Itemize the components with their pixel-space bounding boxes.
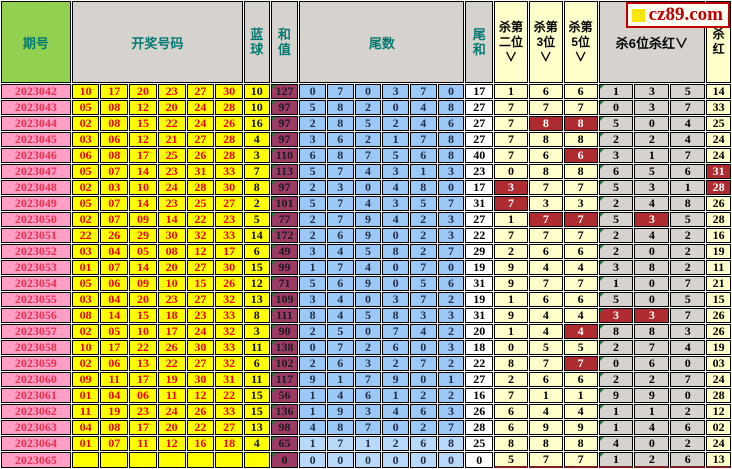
tail-sum-cell: 18	[465, 340, 493, 355]
kill-pos5-cell: 7	[564, 100, 598, 115]
blue-ball-cell: 11	[244, 340, 270, 355]
tail-cell: 5	[355, 244, 382, 259]
tail-sum-cell: 25	[465, 436, 493, 451]
red-ball-cell: 07	[100, 196, 128, 211]
period-cell: 2023055	[1, 292, 71, 307]
tail-cell: 8	[438, 132, 465, 147]
tail-sum-cell: 17	[465, 84, 493, 99]
red-ball-cell: 21	[158, 132, 186, 147]
kill-pos2-cell: 0	[494, 340, 528, 355]
red-ball-cell: 18	[158, 308, 186, 323]
sum-cell: 97	[271, 116, 299, 131]
period-cell: 2023060	[1, 372, 71, 387]
kill-pos3-cell: 8	[529, 132, 563, 147]
red-ball-cell: 06	[129, 388, 157, 403]
kill-pos5-cell: 7	[564, 180, 598, 195]
col-header-kill-pos2[interactable]: 杀第二位∨	[494, 1, 528, 83]
tail-cell: 0	[382, 260, 409, 275]
red-ball-cell: 09	[129, 276, 157, 291]
red-ball-cell: 03	[72, 244, 100, 259]
kill6-red-cell: 8	[670, 196, 705, 211]
kill-pos5-cell: 8	[564, 132, 598, 147]
tail-cell: 4	[382, 404, 409, 419]
red-ball-cell: 25	[187, 196, 215, 211]
red-ball-cell	[129, 452, 157, 468]
tail-cell: 3	[438, 228, 465, 243]
tail-cell: 8	[438, 100, 465, 115]
kill-pos3-cell: 6	[529, 84, 563, 99]
kill-pos5-cell: 7	[564, 356, 598, 371]
kill-pos3-cell: 6	[529, 372, 563, 387]
red-ball-cell: 23	[158, 196, 186, 211]
kill-pos3-cell: 7	[529, 100, 563, 115]
red-ball-cell: 22	[215, 388, 243, 403]
tail-cell: 7	[327, 84, 354, 99]
red-ball-cell: 07	[100, 212, 128, 227]
tail-cell: 7	[327, 260, 354, 275]
red-ball-cell: 10	[129, 324, 157, 339]
red-ball-cell	[215, 452, 243, 468]
tail-cell: 6	[382, 340, 409, 355]
red-ball-cell: 29	[129, 228, 157, 243]
period-cell: 2023061	[1, 388, 71, 403]
red-ball-cell: 02	[72, 212, 100, 227]
red-ball-cell: 24	[187, 100, 215, 115]
kill6-red-cell: 9	[634, 388, 669, 403]
kill6-red-cell: 6	[599, 164, 634, 179]
red-ball-cell: 33	[215, 340, 243, 355]
tail-cell: 0	[299, 340, 326, 355]
red-ball-cell: 26	[187, 404, 215, 419]
red-ball-cell: 10	[129, 180, 157, 195]
kill6-red-cell: 0	[634, 276, 669, 291]
tail-cell: 0	[382, 420, 409, 435]
tail-cell: 3	[299, 292, 326, 307]
tail-cell: 3	[382, 84, 409, 99]
red-ball-cell: 01	[72, 260, 100, 275]
red-ball-cell: 33	[215, 404, 243, 419]
tail-cell: 5	[299, 164, 326, 179]
tail-cell: 0	[355, 324, 382, 339]
tail-cell: 8	[382, 244, 409, 259]
tail-cell: 2	[410, 420, 437, 435]
tail-cell: 0	[438, 84, 465, 99]
red-ball-cell: 27	[187, 84, 215, 99]
red-ball-cell: 22	[187, 212, 215, 227]
kill6-red-cell: 0	[634, 116, 669, 131]
table-body: 2023042101720232730101270703701716613514…	[1, 84, 731, 468]
sum-cell: 109	[271, 292, 299, 307]
tail-sum-cell: 29	[465, 244, 493, 259]
kill-pos3-cell: 7	[529, 228, 563, 243]
sum-cell: 49	[271, 244, 299, 259]
period-cell: 2023063	[1, 420, 71, 435]
tail-cell: 1	[299, 436, 326, 451]
red-ball-cell: 14	[129, 260, 157, 275]
kill6-red-cell: 0	[634, 292, 669, 307]
tail-cell: 6	[327, 228, 354, 243]
tail-cell: 2	[438, 324, 465, 339]
tail-cell: 6	[327, 132, 354, 147]
table-row: 202304305081220242810975820482777703733	[1, 100, 731, 115]
red-ball-cell: 02	[72, 180, 100, 195]
tail-sum-cell: 40	[465, 148, 493, 163]
kill6-red-cell: 5	[599, 180, 634, 195]
tail-cell: 3	[438, 308, 465, 323]
tail-sum-cell: 27	[465, 100, 493, 115]
sum-cell: 71	[271, 276, 299, 291]
red-ball-cell: 27	[215, 196, 243, 211]
red-ball-cell	[100, 452, 128, 468]
kill6-red-cell: 2	[599, 132, 634, 147]
red-ball-cell: 15	[187, 276, 215, 291]
blue-ball-cell: 10	[244, 100, 270, 115]
sum-cell: 101	[271, 196, 299, 211]
tail-cell: 0	[438, 260, 465, 275]
kill-pos5-cell: 7	[564, 452, 598, 468]
kill-pos5-cell: 4	[564, 260, 598, 275]
kill6-red-cell: 4	[599, 436, 634, 451]
kill-pos3-cell: 6	[529, 148, 563, 163]
tail-cell: 7	[410, 356, 437, 371]
tail-cell: 2	[410, 212, 437, 227]
red-ball-cell: 30	[215, 260, 243, 275]
kill-pos2-cell: 7	[494, 100, 528, 115]
red-ball-cell: 26	[215, 276, 243, 291]
tail-cell: 7	[327, 340, 354, 355]
red-ball-cell: 33	[215, 308, 243, 323]
tail-cell: 2	[355, 100, 382, 115]
tail-cell: 7	[410, 132, 437, 147]
tail-cell: 6	[299, 148, 326, 163]
tail-cell: 7	[410, 84, 437, 99]
sum-cell: 172	[271, 228, 299, 243]
red-ball-cell: 12	[129, 100, 157, 115]
red-ball-cell: 26	[187, 148, 215, 163]
kill6-red-cell: 3	[634, 180, 669, 195]
kill-pos5-cell: 6	[564, 148, 598, 163]
red-ball-cell: 08	[72, 308, 100, 323]
tail-cell: 2	[438, 388, 465, 403]
red-ball-cell: 18	[215, 436, 243, 451]
table-row: 20230640107111216184651712682588840224	[1, 436, 731, 451]
red-ball-cell: 31	[215, 372, 243, 387]
red-ball-cell: 32	[215, 324, 243, 339]
tail-cell: 8	[327, 116, 354, 131]
kill-pos5-cell: 6	[564, 244, 598, 259]
kill-pos2-cell: 7	[494, 148, 528, 163]
tail-sum-cell: 20	[465, 324, 493, 339]
kill-pos2-cell: 3	[494, 180, 528, 195]
tail-cell: 3	[299, 244, 326, 259]
kill6-red-cell: 7	[670, 100, 705, 115]
red-ball-cell: 27	[187, 292, 215, 307]
red-ball-cell: 01	[72, 436, 100, 451]
table-row: 2023058101722263033111380726031805527419	[1, 340, 731, 355]
tail-cell: 5	[355, 308, 382, 323]
kill6-red-cell: 2	[634, 132, 669, 147]
col-header-tail-sum: 尾和	[465, 1, 493, 83]
table-row: 2023060091117193031111179179012726622724	[1, 372, 731, 387]
tail-cell: 3	[438, 340, 465, 355]
tail-cell: 0	[355, 452, 382, 468]
kill-pos2-cell: 6	[494, 420, 528, 435]
tail-cell: 8	[327, 100, 354, 115]
kill6-red-cell: 7	[670, 148, 705, 163]
kill-red-cell: 19	[706, 340, 731, 355]
tail-sum-cell: 26	[465, 404, 493, 419]
tail-cell: 2	[382, 436, 409, 451]
table-row: 202305902061322273261022632722287706003	[1, 356, 731, 371]
col-header-draw-numbers: 开奖号码	[72, 1, 243, 83]
kill-pos2-cell: 1	[494, 212, 528, 227]
tail-cell: 4	[355, 164, 382, 179]
sum-cell: 97	[271, 100, 299, 115]
blue-ball-cell: 12	[244, 276, 270, 291]
kill-red-cell: 11	[706, 260, 731, 275]
kill-pos2-cell: 9	[494, 260, 528, 275]
tail-cell: 3	[382, 292, 409, 307]
blue-ball-cell: 14	[244, 228, 270, 243]
tail-cell: 1	[438, 372, 465, 387]
tail-cell: 4	[299, 420, 326, 435]
tail-sum-cell: 19	[465, 292, 493, 307]
kill-pos5-cell: 8	[564, 116, 598, 131]
kill-red-cell: 21	[706, 276, 731, 291]
red-ball-cell: 24	[158, 404, 186, 419]
red-ball-cell: 11	[100, 372, 128, 387]
kill-pos5-cell: 4	[564, 324, 598, 339]
red-ball-cell: 22	[158, 116, 186, 131]
tail-cell: 4	[355, 196, 382, 211]
red-ball-cell: 28	[215, 100, 243, 115]
kill6-red-cell: 6	[670, 452, 705, 468]
kill-pos5-cell: 8	[564, 436, 598, 451]
red-ball-cell: 33	[215, 228, 243, 243]
kill-pos2-cell: 1	[494, 324, 528, 339]
tail-cell: 8	[410, 180, 437, 195]
tail-cell: 7	[327, 164, 354, 179]
red-ball-cell: 09	[129, 212, 157, 227]
blue-ball-cell	[244, 452, 270, 468]
tail-cell: 2	[382, 356, 409, 371]
red-ball-cell: 09	[72, 372, 100, 387]
tail-cell: 2	[299, 356, 326, 371]
tail-cell: 9	[299, 372, 326, 387]
red-ball-cell: 23	[129, 404, 157, 419]
tail-cell: 1	[410, 164, 437, 179]
red-ball-cell: 28	[215, 148, 243, 163]
tail-cell: 7	[410, 292, 437, 307]
red-ball-cell: 08	[100, 420, 128, 435]
tail-sum-cell: 27	[465, 372, 493, 387]
tail-cell: 5	[382, 148, 409, 163]
tail-cell: 1	[327, 372, 354, 387]
red-ball-cell: 11	[72, 404, 100, 419]
tail-cell: 3	[438, 404, 465, 419]
tail-cell: 0	[355, 180, 382, 195]
blue-ball-cell: 13	[244, 292, 270, 307]
red-ball-cell: 26	[215, 116, 243, 131]
tail-cell: 3	[438, 164, 465, 179]
kill-pos2-cell: 9	[494, 276, 528, 291]
kill-red-cell: 15	[706, 292, 731, 307]
red-ball-cell: 05	[72, 196, 100, 211]
period-cell: 2023058	[1, 340, 71, 355]
sum-cell: 110	[271, 148, 299, 163]
red-ball-cell: 14	[158, 212, 186, 227]
sum-cell: 138	[271, 340, 299, 355]
kill6-red-cell: 2	[634, 372, 669, 387]
col-header-kill-pos5[interactable]: 杀第5位∨	[564, 1, 598, 83]
red-ball-cell: 24	[187, 116, 215, 131]
tail-sum-cell: 22	[465, 228, 493, 243]
kill6-red-cell: 4	[670, 340, 705, 355]
tail-cell: 6	[438, 276, 465, 291]
red-ball-cell: 19	[158, 372, 186, 387]
red-ball-cell: 24	[158, 180, 186, 195]
site-logo[interactable]: cz89.com	[626, 2, 730, 28]
red-ball-cell: 30	[215, 180, 243, 195]
tail-cell: 4	[410, 100, 437, 115]
kill6-red-cell: 1	[670, 180, 705, 195]
sum-cell: 97	[271, 180, 299, 195]
sum-cell: 117	[271, 372, 299, 387]
sum-cell: 111	[271, 308, 299, 323]
kill6-red-cell: 2	[599, 244, 634, 259]
red-ball-cell: 22	[72, 228, 100, 243]
kill-pos2-cell: 8	[494, 436, 528, 451]
blue-ball-cell: 3	[244, 324, 270, 339]
sum-cell: 102	[271, 356, 299, 371]
tail-cell: 7	[355, 372, 382, 387]
red-ball-cell: 14	[129, 164, 157, 179]
table-row: 20230450306122127284973621782778822424	[1, 132, 731, 147]
tail-cell: 9	[355, 228, 382, 243]
sum-cell: 98	[271, 420, 299, 435]
kill-pos2-cell: 2	[494, 244, 528, 259]
tail-cell: 2	[355, 340, 382, 355]
kill-red-cell: 33	[706, 100, 731, 115]
kill6-red-cell: 4	[634, 420, 669, 435]
kill6-red-cell: 5	[599, 212, 634, 227]
red-ball-cell: 10	[72, 340, 100, 355]
tail-cell: 5	[299, 276, 326, 291]
red-ball-cell: 01	[72, 388, 100, 403]
tail-sum-cell: 31	[465, 196, 493, 211]
kill-pos2-cell: 1	[494, 84, 528, 99]
tail-sum-cell: 17	[465, 180, 493, 195]
red-ball-cell: 08	[158, 244, 186, 259]
period-cell: 2023045	[1, 132, 71, 147]
tail-cell: 9	[327, 404, 354, 419]
red-ball-cell: 30	[187, 372, 215, 387]
kill-pos3-cell: 7	[529, 212, 563, 227]
tail-cell: 2	[382, 116, 409, 131]
kill-red-cell: 26	[706, 308, 731, 323]
kill-pos2-cell: 2	[494, 372, 528, 387]
red-ball-cell: 26	[158, 340, 186, 355]
kill6-red-cell: 5	[599, 116, 634, 131]
red-ball-cell: 28	[187, 180, 215, 195]
col-header-blue-ball: 蓝球	[244, 1, 270, 83]
red-ball-cell: 28	[215, 132, 243, 147]
blue-ball-cell: 15	[244, 260, 270, 275]
sum-cell: 136	[271, 404, 299, 419]
kill-pos2-cell: 0	[494, 164, 528, 179]
red-ball-cell: 23	[158, 164, 186, 179]
tail-cell: 9	[355, 212, 382, 227]
kill-pos5-cell: 5	[564, 340, 598, 355]
kill6-red-cell: 2	[670, 244, 705, 259]
tail-cell: 2	[410, 388, 437, 403]
tail-cell: 7	[355, 148, 382, 163]
red-ball-cell: 10	[72, 84, 100, 99]
red-ball-cell: 23	[215, 212, 243, 227]
tail-cell: 6	[410, 436, 437, 451]
kill6-red-cell: 3	[634, 212, 669, 227]
red-ball-cell: 20	[129, 84, 157, 99]
red-ball-cell: 17	[129, 148, 157, 163]
red-ball-cell: 06	[72, 148, 100, 163]
tail-cell: 9	[355, 276, 382, 291]
tail-cell: 3	[382, 196, 409, 211]
period-cell: 2023044	[1, 116, 71, 131]
red-ball-cell: 04	[72, 420, 100, 435]
kill-pos3-cell: 6	[529, 292, 563, 307]
period-cell: 2023062	[1, 404, 71, 419]
tail-cell: 7	[438, 244, 465, 259]
kill-red-cell: 24	[706, 372, 731, 387]
table-row: 2023042101720232730101270703701716613514	[1, 84, 731, 99]
red-ball-cell: 12	[129, 132, 157, 147]
tail-sum-cell: 19	[465, 260, 493, 275]
red-ball-cell	[158, 452, 186, 468]
kill-red-cell: 12	[706, 404, 731, 419]
kill-pos2-cell: 7	[494, 228, 528, 243]
col-header-kill-pos3[interactable]: 杀第3位∨	[529, 1, 563, 83]
period-cell: 2023053	[1, 260, 71, 275]
kill6-red-cell: 4	[670, 116, 705, 131]
red-ball-cell: 07	[100, 436, 128, 451]
kill6-red-cell: 3	[599, 260, 634, 275]
sum-cell: 77	[271, 212, 299, 227]
tail-cell: 0	[410, 340, 437, 355]
kill-red-cell: 28	[706, 388, 731, 403]
red-ball-cell: 14	[100, 308, 128, 323]
table-row: 20230500207091422235772794232717753528	[1, 212, 731, 227]
period-cell: 2023050	[1, 212, 71, 227]
tail-cell: 8	[438, 148, 465, 163]
red-ball-cell: 27	[187, 356, 215, 371]
period-cell: 2023042	[1, 84, 71, 99]
logo-text: cz89.com	[649, 5, 723, 25]
red-ball-cell: 17	[129, 372, 157, 387]
kill6-red-cell: 2	[670, 436, 705, 451]
kill-pos2-cell: 7	[494, 116, 528, 131]
blue-ball-cell: 6	[244, 356, 270, 371]
tail-cell: 6	[438, 116, 465, 131]
kill6-red-cell: 2	[599, 372, 634, 387]
kill6-red-cell: 5	[599, 292, 634, 307]
tail-cell: 0	[382, 100, 409, 115]
kill6-red-cell: 7	[670, 308, 705, 323]
kill-pos5-cell: 9	[564, 420, 598, 435]
tail-cell: 1	[299, 260, 326, 275]
sum-cell: 99	[271, 260, 299, 275]
tail-cell: 8	[299, 308, 326, 323]
tail-sum-cell: 28	[465, 420, 493, 435]
